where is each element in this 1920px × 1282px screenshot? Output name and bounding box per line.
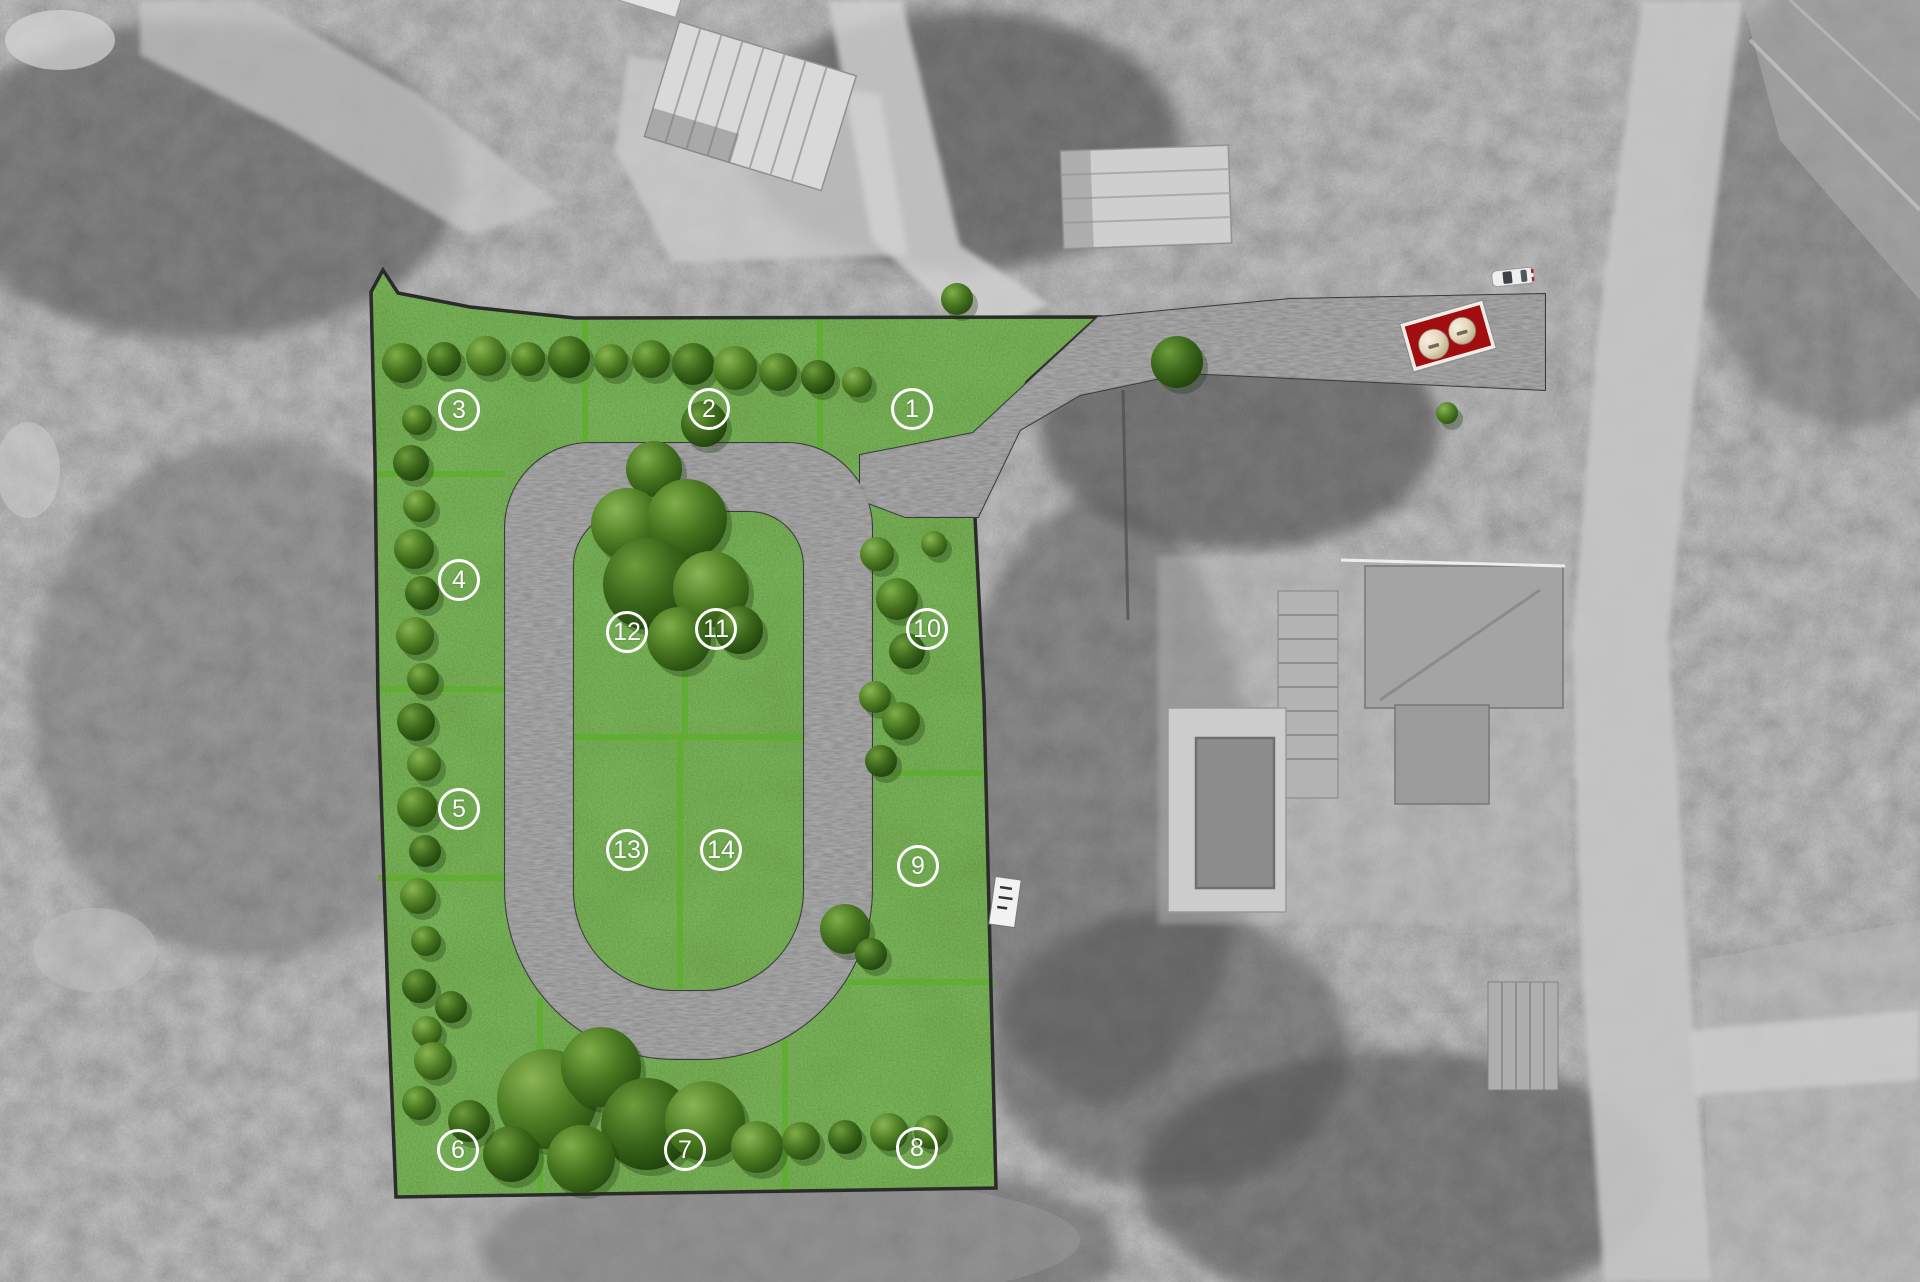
tree-icon (407, 747, 441, 781)
tree-icon (427, 342, 461, 376)
mid-right-building (1060, 145, 1231, 249)
tree-icon (466, 336, 506, 376)
car-taillight (1531, 269, 1534, 273)
tree-icon (411, 926, 441, 956)
tree-icon (672, 343, 714, 385)
tree-icon (647, 607, 711, 671)
tree-icon (405, 576, 439, 610)
tree-icon (731, 1121, 783, 1173)
tree-icon (393, 445, 429, 481)
outbuilding (1488, 982, 1558, 1090)
tree-icon (681, 401, 727, 447)
tree-icon (397, 787, 437, 827)
roof-corrugated (1278, 591, 1338, 798)
tree-icon (403, 490, 435, 522)
tree-icon (412, 1016, 442, 1046)
tree-icon (632, 340, 670, 378)
tree-icon (855, 938, 887, 970)
tree-icon (396, 617, 434, 655)
tree-icon (859, 681, 891, 713)
tree-icon (402, 969, 436, 1003)
tree-icon (876, 578, 918, 620)
roof-large (1365, 566, 1563, 708)
tree-icon (448, 1100, 490, 1142)
tree-icon (548, 336, 590, 378)
tree-icon (941, 283, 973, 315)
tree-icon (1436, 402, 1458, 424)
pool (1168, 708, 1286, 912)
tree-icon (394, 529, 434, 569)
tree-icon (889, 633, 925, 669)
tree-icon (782, 1122, 820, 1160)
car-taillight (1532, 277, 1535, 281)
tree-icon (865, 745, 897, 777)
tree-icon (801, 360, 835, 394)
tree-icon (402, 405, 432, 435)
tree-icon (828, 1120, 862, 1154)
tree-icon (382, 343, 422, 383)
tree-icon (409, 835, 441, 867)
site-plan-canvas (0, 0, 1920, 1282)
tree-icon (511, 342, 545, 376)
tree-icon (435, 991, 467, 1023)
tree-icon (414, 1042, 452, 1080)
tree-icon (713, 346, 757, 390)
tree-icon (860, 537, 894, 571)
tree-icon (547, 1125, 615, 1193)
bottom-right-field (1700, 920, 1920, 1282)
tree-icon (397, 703, 435, 741)
car-rear-window (1520, 270, 1527, 283)
pool-water (1196, 738, 1274, 888)
tree-icon (842, 367, 872, 397)
roof-small (1395, 705, 1489, 804)
tree-icon (914, 1115, 948, 1149)
car-windshield (1502, 271, 1512, 284)
tree-icon (759, 353, 797, 391)
tree-icon (870, 1113, 908, 1151)
tree-icon (407, 663, 439, 695)
tree-icon (1151, 336, 1203, 388)
tree-icon (400, 878, 436, 914)
tree-icon (594, 344, 628, 378)
site-plan-aerial-view: 1234567891011121314 (0, 0, 1920, 1282)
tree-icon (882, 702, 920, 740)
tree-icon (402, 1086, 436, 1120)
tree-icon (921, 531, 947, 557)
tree-icon (715, 606, 763, 654)
